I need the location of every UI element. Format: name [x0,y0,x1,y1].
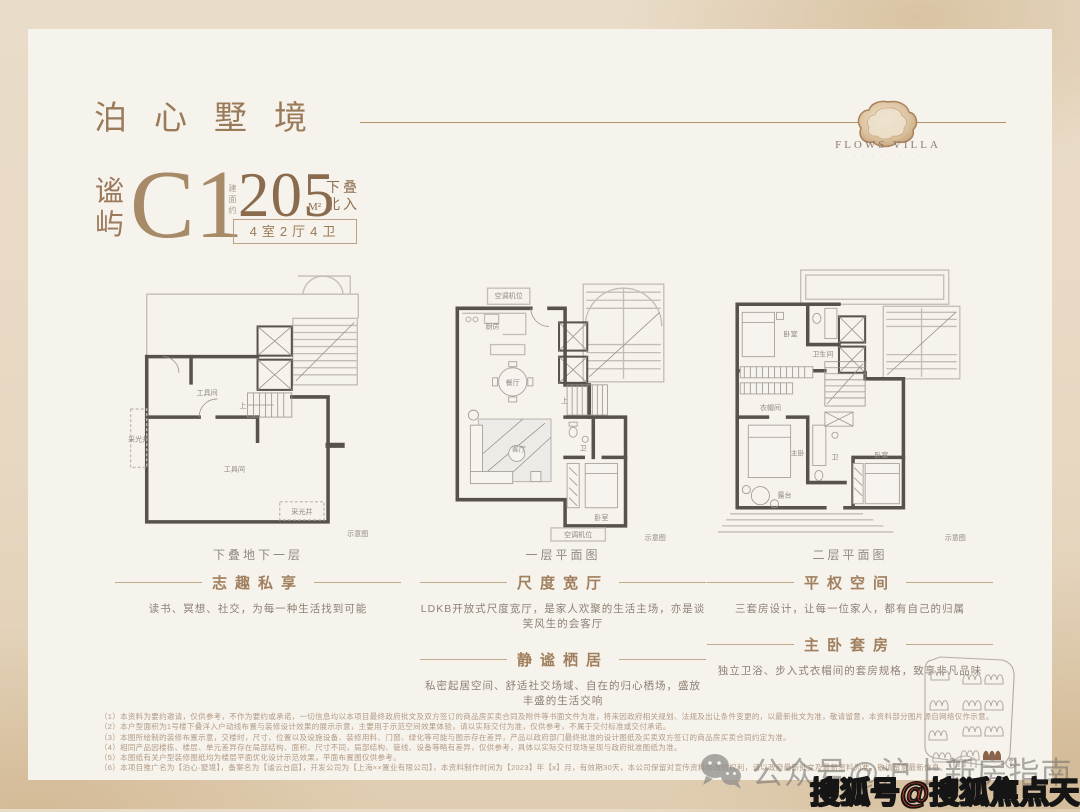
room-label: 餐厅 [506,378,520,387]
floorplan-second-floor: 卧室 卫生间 衣帽间 主卧 卫 卧室 露台 示意图 [712,266,979,543]
master-bedroom [748,425,790,477]
room-label: 主卧 [791,448,805,457]
room-label: 厨房 [486,321,500,330]
unit-layout-badge: 4室2厅4卫 [233,219,357,244]
unit-tag: 北入 [326,196,360,213]
terrace-steps [718,514,893,532]
wechat-icon [698,751,744,791]
walkin-closet [740,367,813,394]
room-label: 露台 [778,491,792,500]
heading-text: 志趣私享 [212,572,304,593]
room-label: 空调机位 [495,291,523,300]
bedroom-2 [853,463,899,503]
room-label: 工具间 [224,465,245,473]
heading-text: 平权空间 [804,572,896,593]
room-label: 衣帽间 [760,403,781,412]
section-body: LDKB开放式尺度宽厅，是家人欢聚的生活主场，亦是谈笑风生的会客厅 [420,601,706,631]
section-body: 三套房设计，让每一位家人，都有自己的归属 [707,601,993,616]
section-heading: 平权空间 [707,572,993,593]
heading-rule-right [314,582,401,583]
disclaimer-line: （1）本资料为要约邀请，仅供参考，不作为要约或承诺，一切信息均以本项目最终政府批… [100,712,1030,722]
floorplan-basement: 上 采光井 采光井 工具间 工具间 示意图 [128,268,376,540]
sohu-watermark: 搜狐号@搜狐焦点天门站 [810,768,1080,812]
heading-rule-left [420,659,507,660]
room-label: 上 [239,401,246,410]
floorplan-first-floor: 厨房 餐厅 客厅 卧室 卫 上 空调机位 空调机位 示意图 [432,266,674,543]
heading-rule-right [906,582,993,583]
stairs [247,393,291,417]
column-basement: 下叠地下一层 志趣私享 读书、冥想、社交，为每一种生活找到可能 [115,546,401,616]
room-label: 卫生间 [812,350,833,359]
heading-rule-right [619,582,706,583]
plan-note: 示意图 [347,529,368,538]
unit-name: 谧 屿 [95,176,126,242]
heading-rule-left [707,644,794,645]
unit-tag: 下叠 [326,179,360,196]
section-heading: 静谧栖居 [420,649,706,670]
stairs [825,362,865,406]
room-label: 客厅 [512,444,526,453]
plan-caption: 下叠地下一层 [115,546,401,563]
room-label: 工具间 [197,389,218,397]
section-heading: 志趣私享 [115,572,401,593]
plan-note: 示意图 [945,533,966,542]
bedroom-furniture [567,463,617,507]
kitchen [462,313,525,354]
page-title: 泊心墅境 [94,91,334,139]
room-label: 上 [561,396,568,405]
disclaimer-line: （3）本图所绘制的装修布置示意，交楼时，尺寸、位置以及设施设备、装修用料、门窗、… [100,733,1030,743]
unit-tags: 下叠 北入 [326,179,360,213]
section-heading: 尺度宽厅 [420,572,706,593]
terrace-furniture [742,486,778,508]
room-label: 采光井 [128,434,149,443]
unit-name-char: 谧 [95,176,126,209]
brand-name: FLOWS VILLA [827,139,949,151]
room-label: 卫 [831,453,838,461]
bathroom-1-fixtures [813,308,837,338]
brand-subtitle: · · · · · · · · [827,154,949,160]
room-label: 卧室 [594,513,608,522]
stairs [567,385,607,415]
heading-text: 主卧套房 [804,634,896,655]
heading-rule-right [619,659,706,660]
heading-rule-left [707,582,794,583]
poster-stage: 泊心墅境 FLOWS VILLA · · · · · · · · 谧 屿 C1 … [0,0,1080,809]
heading-rule-right [906,644,993,645]
section-body: 读书、冥想、社交，为每一种生活找到可能 [115,601,401,616]
plan-note: 示意图 [645,533,666,542]
unit-area-label: 建面约 [227,184,238,217]
heading-rule-left [115,582,202,583]
room-label: 卧室 [784,330,798,339]
column-first-floor: 一层平面图 尺度宽厅 LDKB开放式尺度宽厅，是家人欢聚的生活主场，亦是谈笑风生… [420,546,706,708]
room-label: 采光井 [291,507,312,516]
heading-rule-left [420,582,507,583]
bathroom-2-fixtures [813,425,838,480]
bathroom-fixtures [569,422,588,442]
room-label: 卫 [580,444,587,452]
bedroom-1 [742,312,783,356]
room-label: 空调机位 [564,530,592,539]
section-body: 私密起居空间、舒适社交场域、自在的归心栖场，盛放丰盛的生活交响 [420,678,706,708]
plan-caption: 二层平面图 [707,546,993,563]
unit-area-unit: M² [308,201,321,213]
poster-card: 泊心墅境 FLOWS VILLA · · · · · · · · 谧 屿 C1 … [28,29,1052,780]
unit-name-char: 屿 [95,209,126,242]
heading-text: 尺度宽厅 [517,572,609,593]
disclaimer-line: （2）本户型面积为1号楼下叠洋入户动线布置与装修设计效果的展示示意，主要用于示范… [100,722,1030,732]
elevator-shafts [839,316,865,372]
unit-walls [147,357,342,522]
heading-text: 静谧栖居 [517,649,609,670]
room-label: 卧室 [874,450,888,459]
unit-area-value: 205 [238,164,336,227]
plan-caption: 一层平面图 [420,546,706,563]
elevator-shafts [258,326,292,389]
light-wells [131,409,324,520]
living-area [468,410,551,484]
